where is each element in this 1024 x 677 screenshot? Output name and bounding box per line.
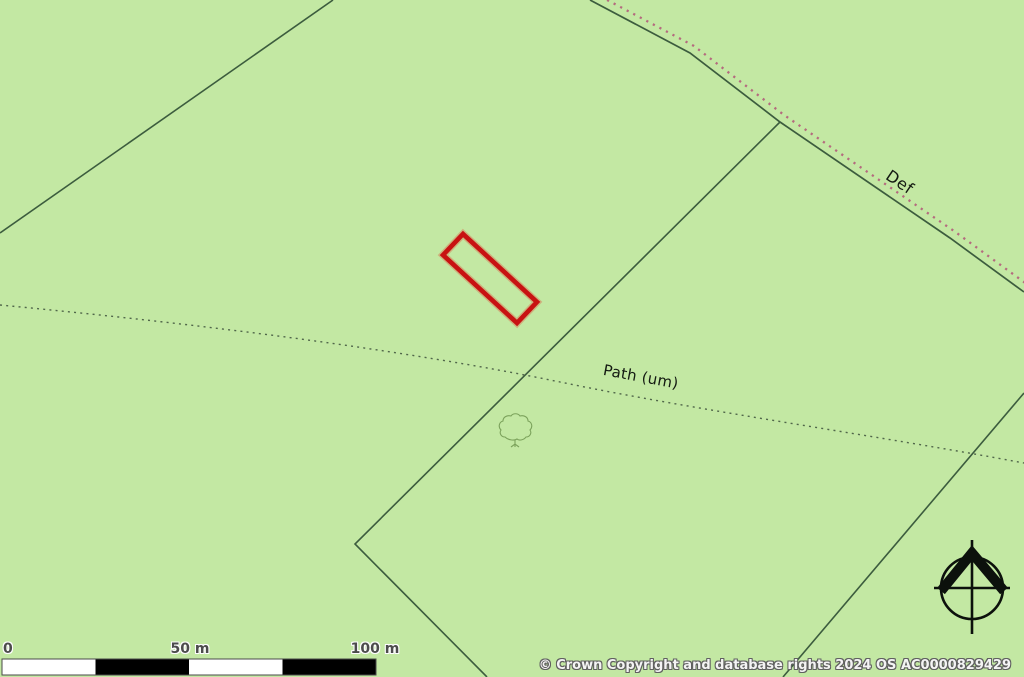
field-background: [0, 0, 1024, 677]
scale-bar: [2, 659, 376, 675]
map-canvas[interactable]: Def Path (um) 0 50 m 100 m © Crown Copyr…: [0, 0, 1024, 677]
scale-bar-segment-black-1: [96, 660, 190, 675]
scale-bar-segment-black-2: [283, 660, 376, 675]
scale-tick-0: 0: [3, 641, 13, 657]
map-layers: [0, 0, 1024, 677]
scale-tick-100m: 100 m: [351, 641, 400, 657]
attribution-text: © Crown Copyright and database rights 20…: [539, 658, 1011, 673]
scale-tick-50m: 50 m: [171, 641, 210, 657]
